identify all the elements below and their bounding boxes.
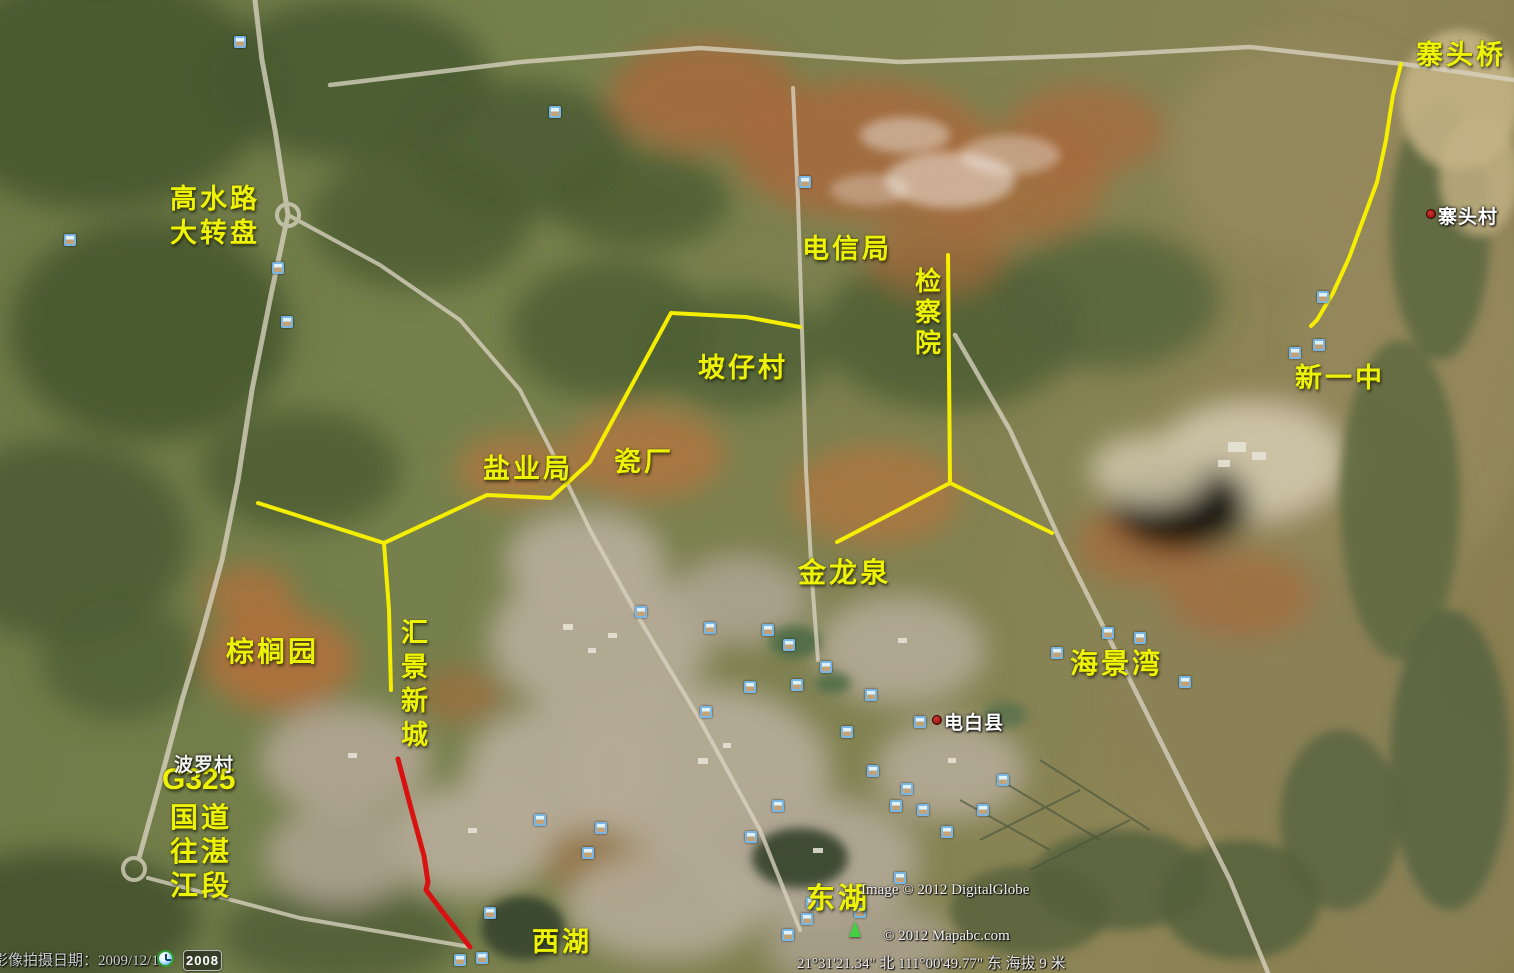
photo-icon[interactable] [272, 262, 284, 274]
photo-icon[interactable] [901, 783, 913, 795]
photo-icon[interactable] [820, 661, 832, 673]
photo-icon[interactable] [914, 716, 926, 728]
historical-imagery-clock-icon[interactable] [157, 950, 174, 967]
label-zhaitouqiao: 寨头桥 [1416, 33, 1506, 72]
photo-icon[interactable] [783, 639, 795, 651]
photo-icon[interactable] [1051, 647, 1063, 659]
photo-icon[interactable] [841, 726, 853, 738]
label-xinyizhong: 新一中 [1295, 356, 1385, 395]
photo-icon[interactable] [484, 907, 496, 919]
timeline-year-box[interactable]: 2008 [183, 950, 222, 971]
copyright-mapabc: © 2012 Mapabc.com [883, 928, 1010, 945]
photo-icon[interactable] [1313, 339, 1325, 351]
label-dazhuanpan: 大转盘 [170, 211, 260, 250]
photo-icon[interactable] [977, 804, 989, 816]
label-pozicun: 坡仔村 [698, 346, 788, 385]
photo-icon[interactable] [281, 316, 293, 328]
coordinates-readout: 21°31'21.34" 北 111°00'49.77" 东 海拔 9 米 [797, 952, 1066, 973]
place-marker-dot[interactable] [1426, 209, 1436, 219]
map-canvas[interactable]: 寨头桥 高水路 大转盘 电信局 检察院 坡仔村 新一中 盐业局 瓷厂 金龙泉 海… [0, 0, 1514, 973]
photo-icon[interactable] [700, 706, 712, 718]
photo-icon[interactable] [745, 831, 757, 843]
label-dianxinju: 电信局 [802, 227, 892, 266]
photo-icon[interactable] [635, 606, 647, 618]
photo-icon[interactable] [744, 681, 756, 693]
place-marker-dot[interactable] [932, 715, 942, 725]
photo-icon[interactable] [595, 822, 607, 834]
photo-icon[interactable] [867, 765, 879, 777]
place-label-zhaitoucun: 寨头村 [1438, 202, 1498, 229]
green-arrow-icon[interactable] [849, 921, 861, 937]
place-label-boluocun: 波罗村 [174, 750, 234, 777]
photo-icon[interactable] [865, 689, 877, 701]
photo-icon[interactable] [234, 36, 246, 48]
photo-icon[interactable] [1102, 627, 1114, 639]
photo-icon[interactable] [476, 952, 488, 964]
place-label-dianbaixian: 电白县 [944, 708, 1004, 735]
photo-icon[interactable] [772, 800, 784, 812]
photo-icon[interactable] [582, 847, 594, 859]
photo-icon[interactable] [917, 804, 929, 816]
label-xihu: 西湖 [532, 920, 592, 959]
photo-icon[interactable] [941, 826, 953, 838]
label-cichang: 瓷厂 [614, 440, 674, 479]
photo-icon[interactable] [1317, 291, 1329, 303]
photo-icon[interactable] [534, 814, 546, 826]
label-huijingxincheng: 汇景新城 [401, 616, 431, 752]
photo-icon[interactable] [64, 234, 76, 246]
label-jiangduan: 江段 [170, 864, 232, 904]
photo-icon[interactable] [799, 176, 811, 188]
photo-icon[interactable] [704, 622, 716, 634]
photo-icon[interactable] [549, 106, 561, 118]
photo-icon[interactable] [782, 929, 794, 941]
photo-icon[interactable] [997, 774, 1009, 786]
label-zonglvyuan: 棕榈园 [226, 630, 319, 670]
copyright-digitalglobe: Image © 2012 DigitalGlobe [861, 882, 1029, 899]
imagery-date-text: 影像拍摄日期：2009/12/11 [0, 949, 166, 970]
label-jinlongquan: 金龙泉 [798, 551, 891, 591]
photo-icon[interactable] [791, 679, 803, 691]
photo-icon[interactable] [890, 800, 902, 812]
label-jianchayuan: 检察院 [915, 266, 943, 359]
label-yanyeju: 盐业局 [483, 447, 573, 486]
photo-icon[interactable] [454, 954, 466, 966]
photo-icon[interactable] [762, 624, 774, 636]
photo-icon[interactable] [1179, 676, 1191, 688]
label-haijingwan: 海景湾 [1070, 642, 1163, 682]
